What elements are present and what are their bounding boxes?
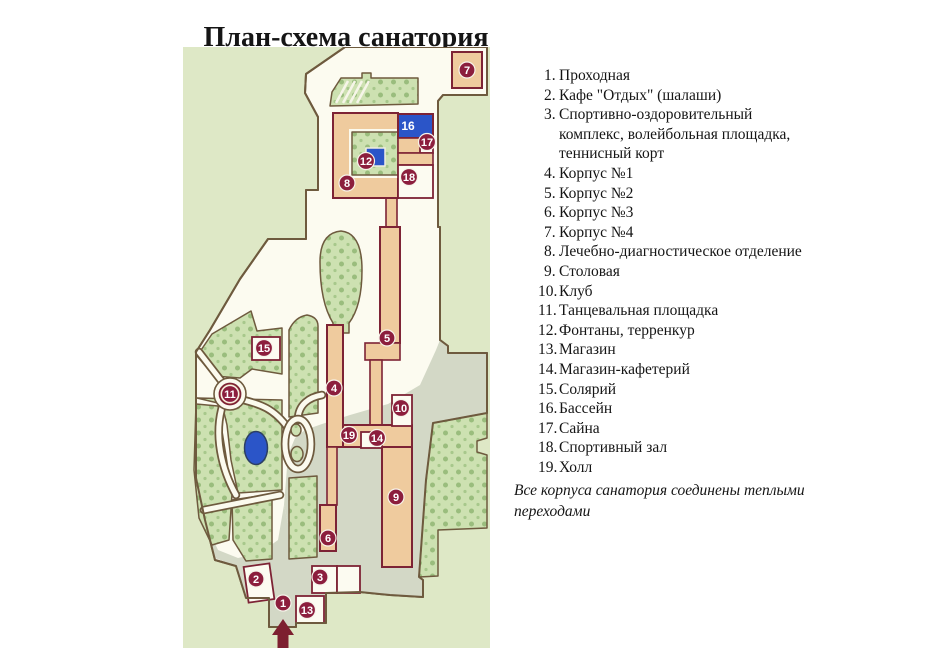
legend-item-9: 9.Столовая: [538, 262, 878, 282]
legend-item-14: 14.Магазин-кафетерий: [538, 360, 878, 380]
svg-text:4: 4: [331, 383, 338, 395]
map-marker-17: 17: [419, 134, 436, 151]
svg-text:11: 11: [224, 389, 236, 401]
svg-text:19: 19: [343, 430, 355, 442]
map-marker-5: 5: [379, 330, 395, 346]
legend-item-4: 4.Корпус №1: [538, 164, 878, 184]
svg-text:6: 6: [325, 533, 331, 545]
legend-item-18: 18.Спортивный зал: [538, 438, 878, 458]
corridor: [386, 198, 397, 229]
map-marker-1: 1: [275, 595, 291, 611]
map-marker-3: 3: [312, 569, 328, 585]
site-map-svg: 1 2 3 4 5 6 7 8 9 10 11 12 13 14 15 16 1…: [183, 47, 490, 648]
legend-item-5: 5.Корпус №2: [538, 184, 878, 204]
svg-text:8: 8: [344, 178, 350, 190]
building-dining-hall: [382, 447, 412, 567]
legend-item-8: 8.Лечебно-диагностическое отделение: [538, 242, 878, 262]
svg-text:14: 14: [371, 433, 384, 445]
building-annex: [398, 153, 433, 165]
map-marker-4: 4: [326, 380, 342, 396]
svg-text:15: 15: [258, 343, 270, 355]
legend-item-15: 15.Солярий: [538, 380, 878, 400]
corridor: [327, 447, 337, 505]
svg-text:18: 18: [403, 172, 415, 184]
map-marker-16: 16: [401, 119, 415, 133]
building-korpus2: [380, 227, 400, 343]
legend-item-2: 2.Кафе "Отдых" (шалаши): [538, 86, 878, 106]
map-marker-6: 6: [320, 530, 336, 546]
legend-item-17: 17.Сайна: [538, 419, 878, 439]
legend-item-10: 10.Клуб: [538, 282, 878, 302]
svg-text:13: 13: [301, 605, 313, 617]
svg-text:5: 5: [384, 333, 390, 345]
map-marker-11: 11: [222, 386, 239, 403]
legend-item-12: 12.Фонтаны, терренкур: [538, 321, 878, 341]
map-marker-8: 8: [339, 175, 355, 191]
map-marker-2: 2: [248, 571, 264, 587]
legend-item-19: 19.Холл: [538, 458, 878, 478]
legend: 1.Проходная 2.Кафе "Отдых" (шалаши) 3.Сп…: [538, 66, 878, 477]
roundabout-island: [291, 424, 301, 436]
legend-item-6: 6.Корпус №3: [538, 203, 878, 223]
svg-text:2: 2: [253, 574, 259, 586]
legend-item-1: 1.Проходная: [538, 66, 878, 86]
svg-text:1: 1: [280, 598, 286, 610]
map-marker-12: 12: [358, 153, 375, 170]
legend-item-16: 16.Бассейн: [538, 399, 878, 419]
building-korpus2-wing: [365, 343, 400, 360]
building-sport-complex-b: [337, 566, 360, 593]
map-marker-7: 7: [459, 62, 475, 78]
map-marker-14: 14: [369, 430, 386, 447]
map-marker-19: 19: [341, 427, 358, 444]
map-marker-18: 18: [401, 169, 418, 186]
building-annex: [398, 138, 421, 153]
park-center-strip-lower: [289, 476, 317, 559]
svg-text:9: 9: [393, 492, 399, 504]
legend-item-3: 3.Спортивно-оздоровительныйкомплекс, вол…: [538, 105, 878, 164]
roundabout-island: [291, 447, 303, 462]
legend-item-7: 7.Корпус №4: [538, 223, 878, 243]
map-marker-15: 15: [256, 340, 273, 357]
map-marker-10: 10: [393, 400, 410, 417]
svg-text:12: 12: [360, 156, 372, 168]
legend-item-11: 11.Танцевальная площадка: [538, 301, 878, 321]
svg-text:10: 10: [395, 403, 407, 415]
legend-item-13: 13.Магазин: [538, 340, 878, 360]
site-map: 1 2 3 4 5 6 7 8 9 10 11 12 13 14 15 16 1…: [183, 47, 490, 648]
map-marker-9: 9: [388, 489, 404, 505]
map-marker-13: 13: [299, 602, 316, 619]
svg-text:3: 3: [317, 572, 323, 584]
svg-text:7: 7: [464, 65, 470, 77]
corridor: [370, 360, 382, 426]
svg-text:17: 17: [421, 137, 433, 149]
legend-footnote: Все корпуса санатория соединены теплыми …: [514, 480, 884, 522]
pond: [245, 432, 268, 465]
